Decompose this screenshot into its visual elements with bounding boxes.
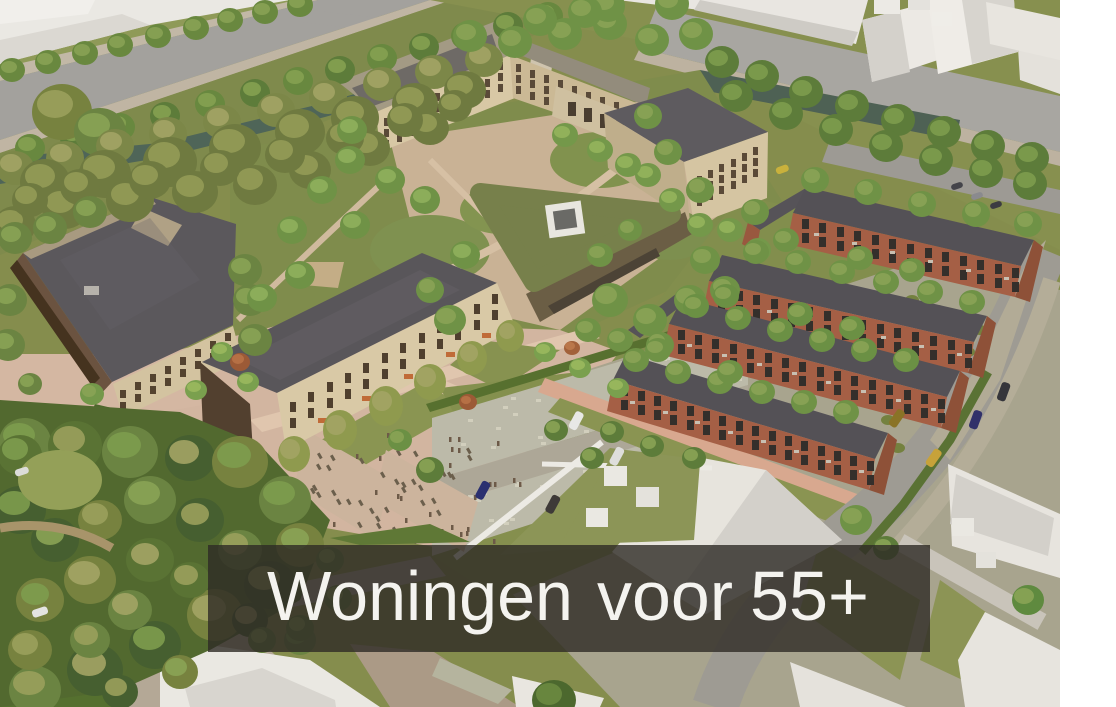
svg-text:Woningenvoor55+: Woningenvoor55+: [267, 557, 869, 635]
